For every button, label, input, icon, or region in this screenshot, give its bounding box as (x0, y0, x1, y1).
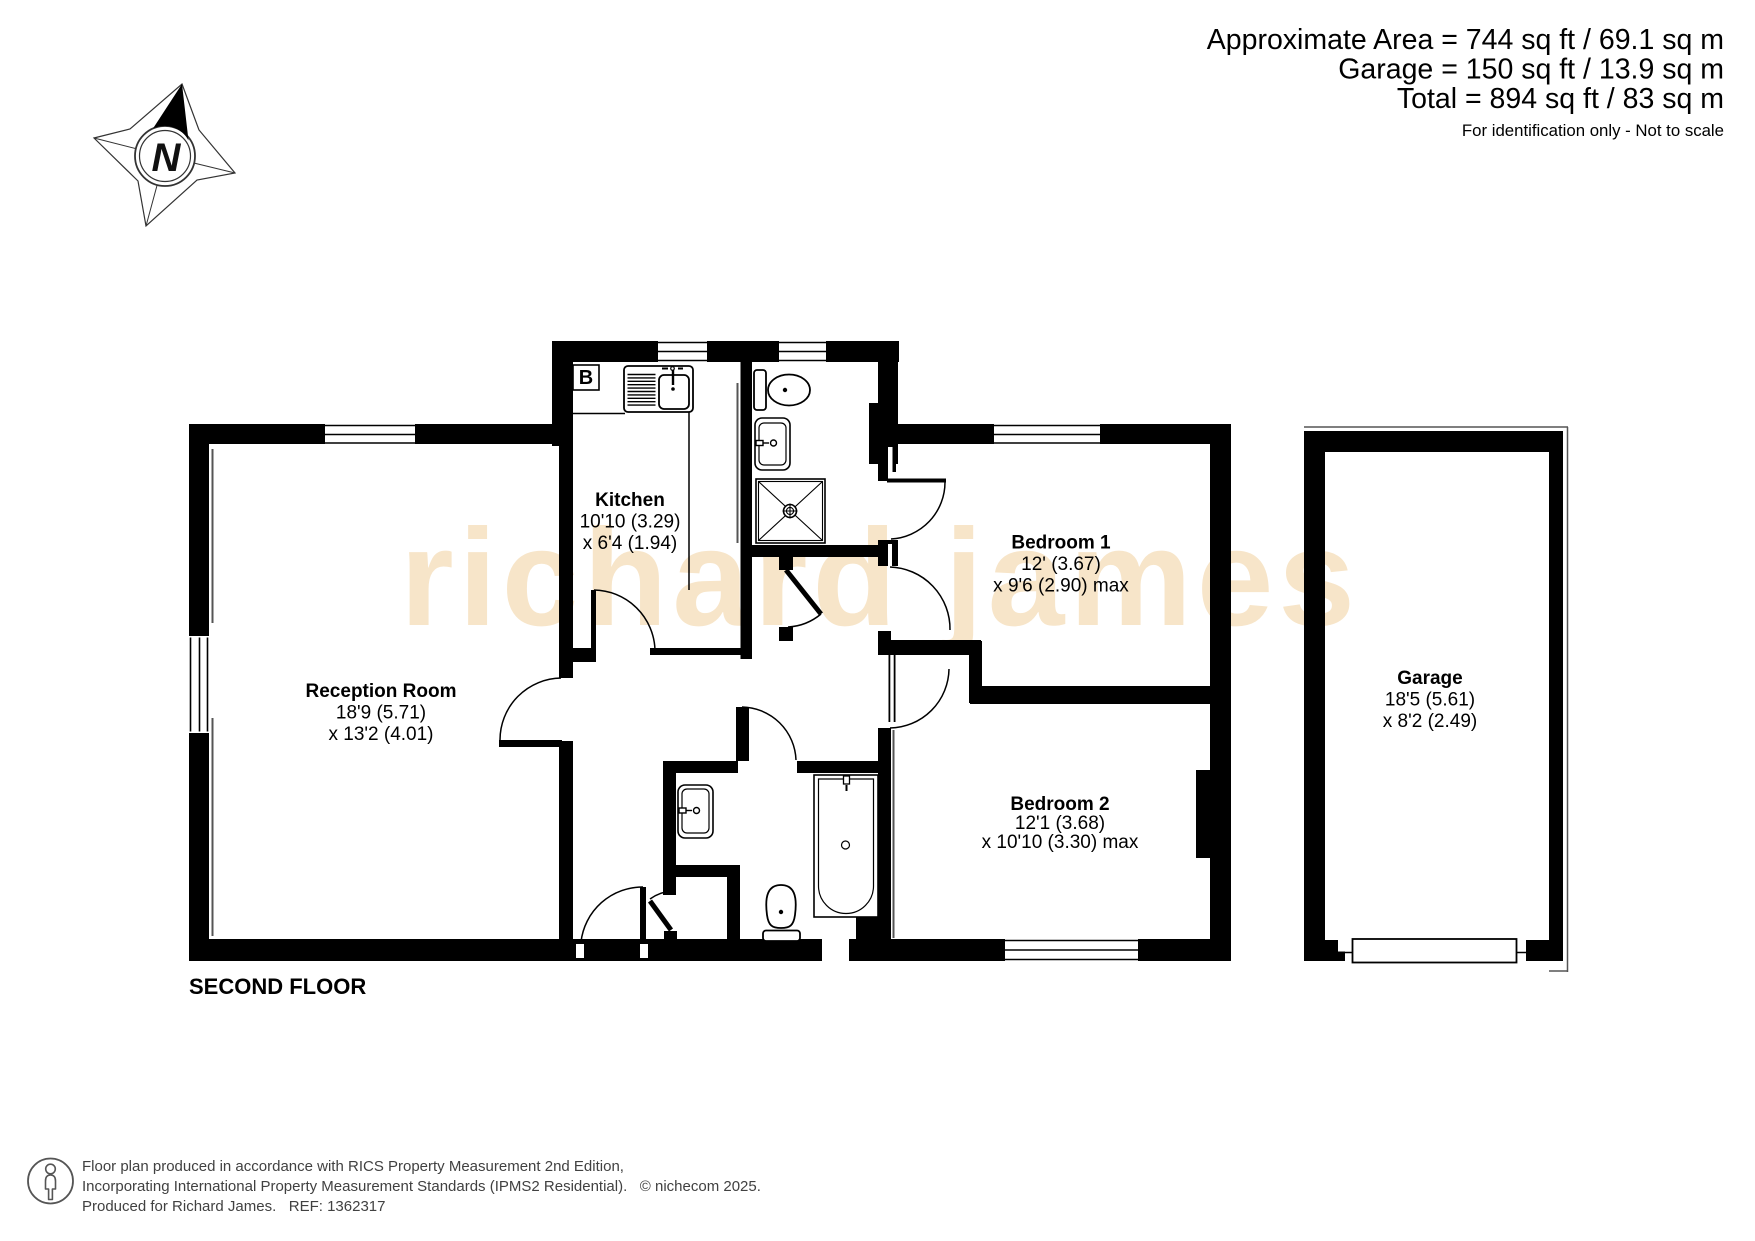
svg-text:Produced for Richard James.: Produced for Richard James. REF: 1362317 (82, 1198, 386, 1215)
svg-text:Bedroom 1: Bedroom 1 (1011, 533, 1111, 554)
svg-text:Bedroom 2: Bedroom 2 (1010, 794, 1109, 815)
svg-text:Kitchen: Kitchen (595, 490, 665, 511)
svg-text:Total = 894 sq ft / 83 sq m: Total = 894 sq ft / 83 sq m (1397, 83, 1724, 115)
svg-text:x 10'10 (3.30) max: x 10'10 (3.30) max (982, 832, 1139, 853)
svg-text:x 6'4 (1.94): x 6'4 (1.94) (583, 533, 677, 554)
svg-text:SECOND FLOOR: SECOND FLOOR (189, 974, 366, 999)
svg-text:x 8'2 (2.49): x 8'2 (2.49) (1383, 711, 1477, 732)
svg-text:For identification only - Not: For identification only - Not to scale (1462, 121, 1724, 140)
svg-text:x 9'6 (2.90) max: x 9'6 (2.90) max (993, 576, 1129, 597)
svg-text:x 13'2 (4.01): x 13'2 (4.01) (328, 724, 433, 745)
svg-text:Reception Room: Reception Room (306, 681, 457, 702)
svg-text:Garage: Garage (1397, 668, 1462, 689)
svg-text:N: N (152, 136, 182, 180)
svg-text:Garage = 150 sq ft / 13.9 sq m: Garage = 150 sq ft / 13.9 sq m (1338, 54, 1724, 86)
svg-text:18'9 (5.71): 18'9 (5.71) (336, 703, 426, 724)
svg-text:18'5 (5.61): 18'5 (5.61) (1385, 690, 1475, 711)
svg-text:B: B (579, 367, 593, 389)
svg-text:12'1 (3.68): 12'1 (3.68) (1015, 813, 1105, 834)
svg-text:10'10 (3.29): 10'10 (3.29) (580, 512, 681, 533)
svg-text:Approximate Area = 744 sq ft /: Approximate Area = 744 sq ft / 69.1 sq m (1207, 24, 1724, 56)
svg-text:Floor plan produced in accorda: Floor plan produced in accordance with R… (82, 1158, 624, 1175)
svg-text:12' (3.67): 12' (3.67) (1021, 554, 1101, 575)
svg-text:Incorporating International Pr: Incorporating International Property Mea… (82, 1178, 761, 1195)
